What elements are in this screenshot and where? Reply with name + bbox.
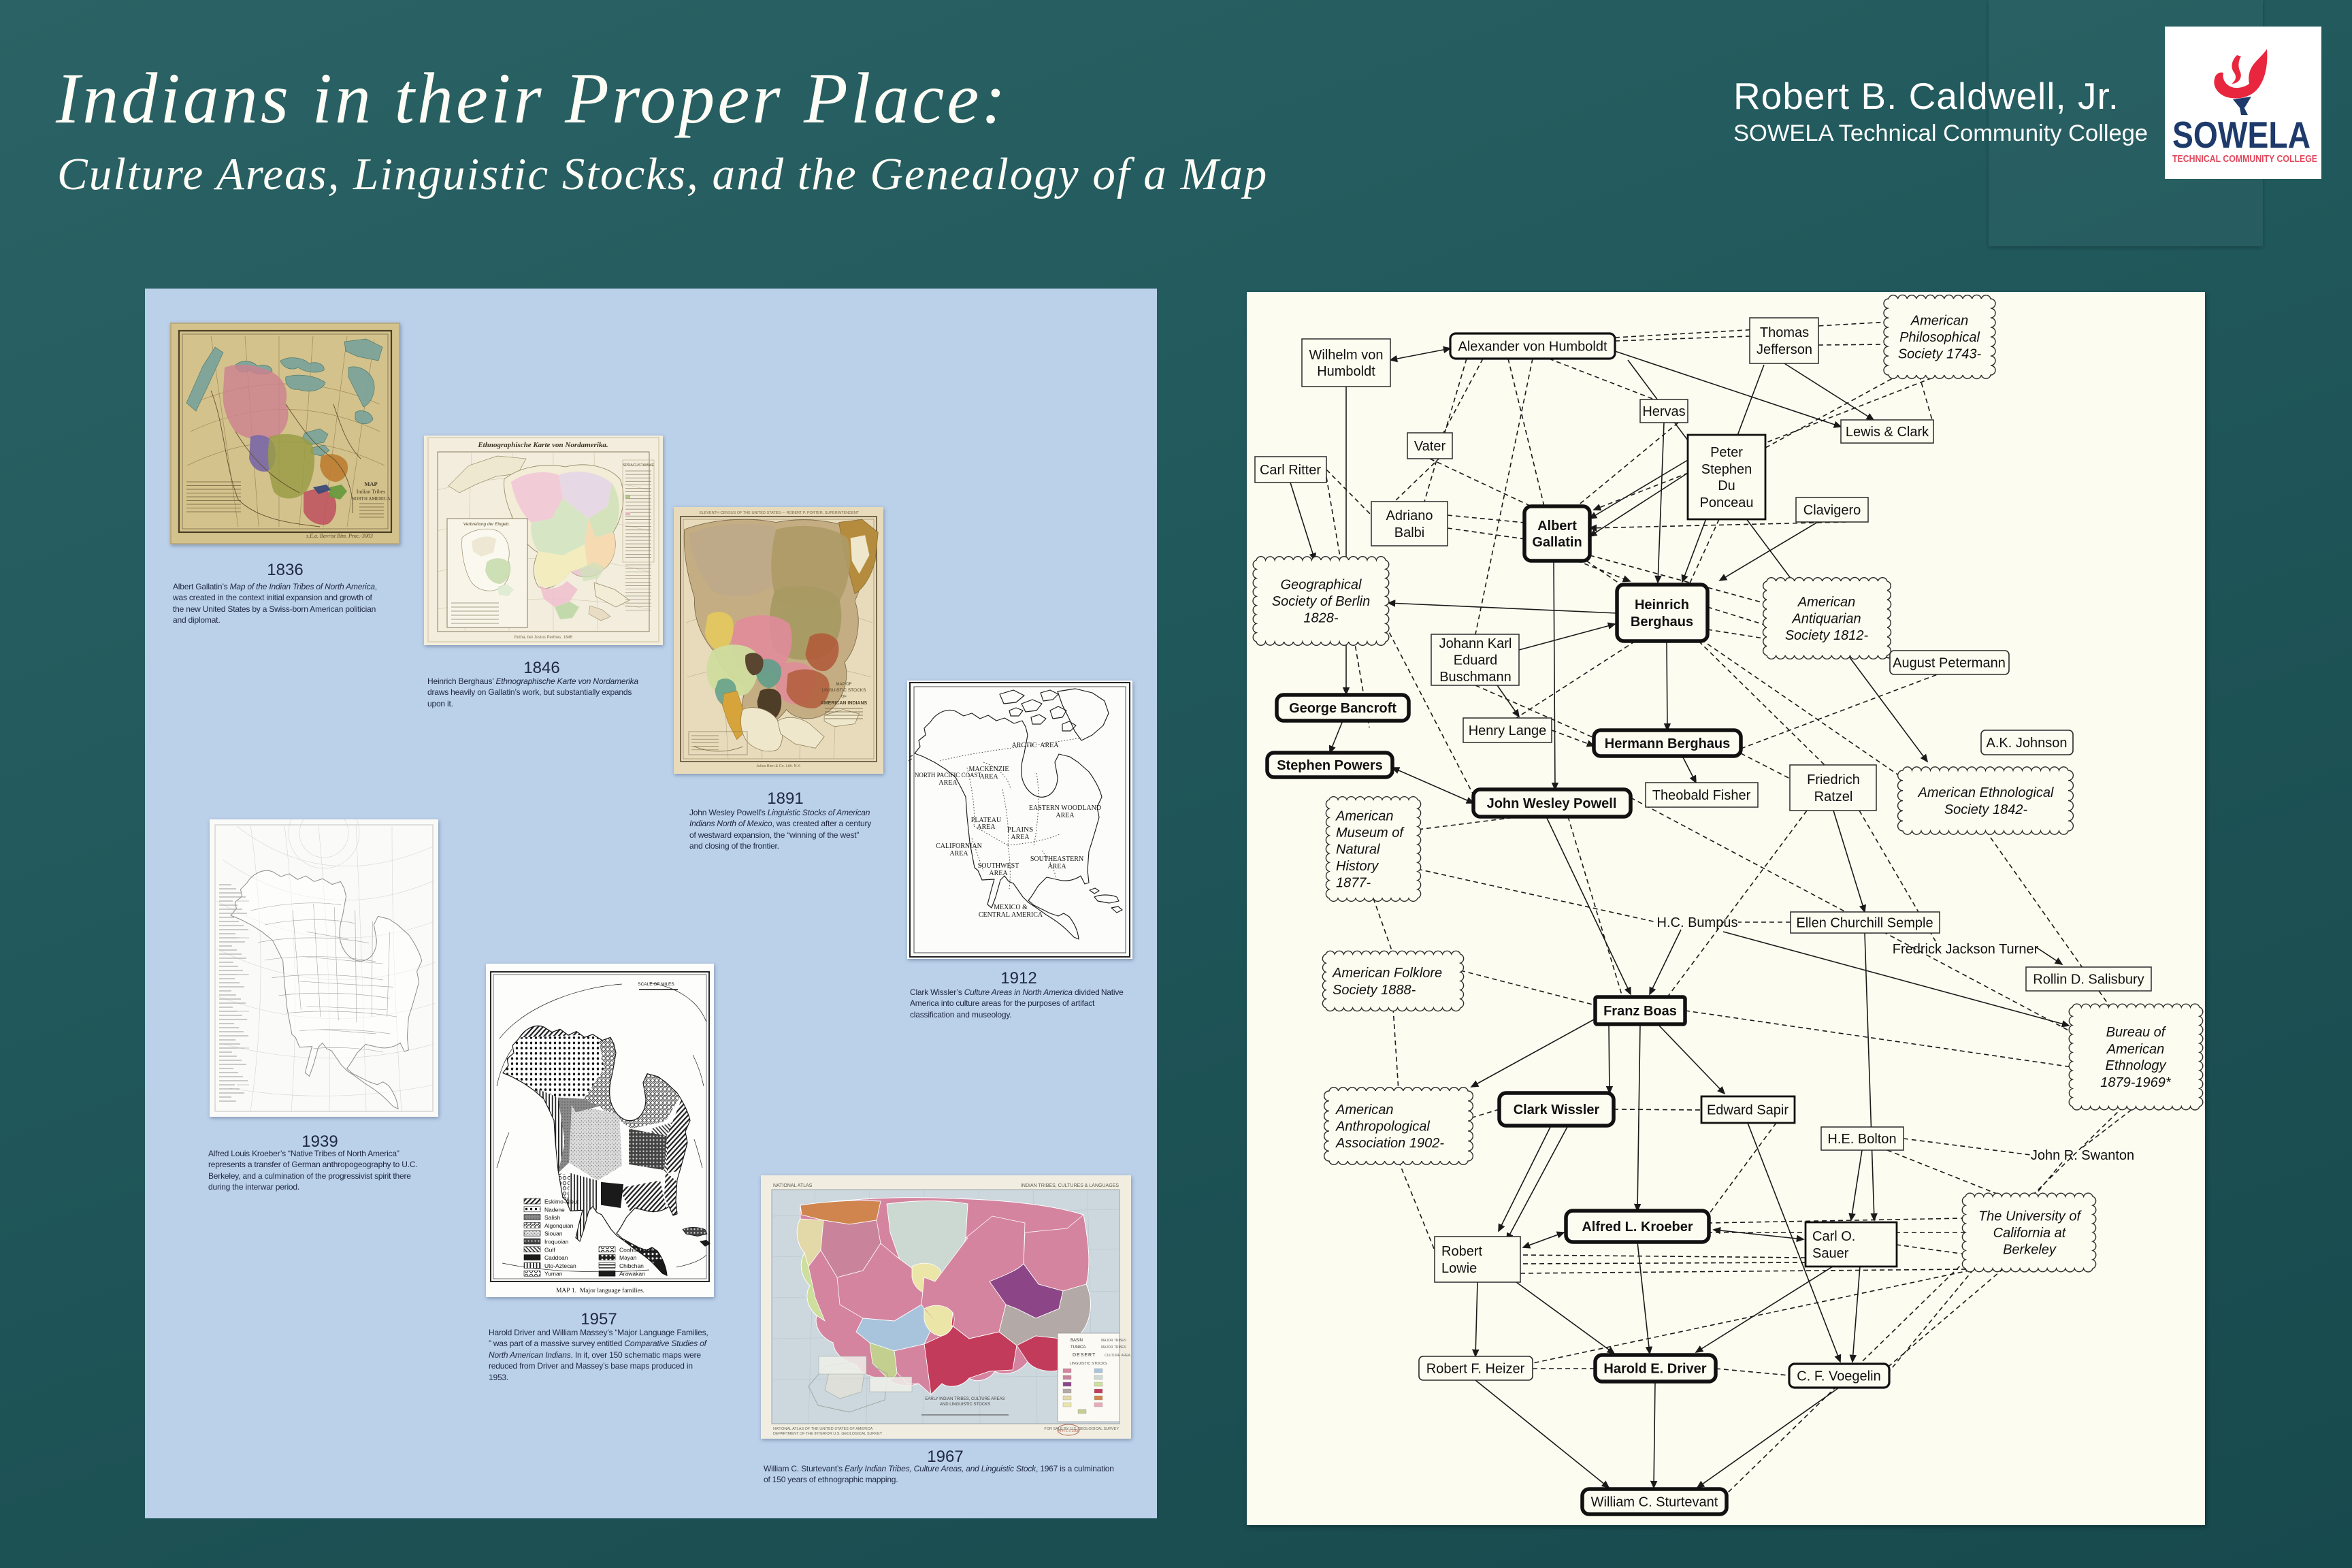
svg-text:Siouan: Siouan xyxy=(544,1230,563,1237)
svg-text:INDIAN TRIBES, CULTURES & LANG: INDIAN TRIBES, CULTURES & LANGUAGES xyxy=(1021,1183,1119,1188)
svg-text:Salish: Salish xyxy=(544,1214,560,1221)
svg-text:AREA: AREA xyxy=(977,823,996,831)
svg-text:NATIONAL ATLAS: NATIONAL ATLAS xyxy=(773,1183,813,1188)
svg-text:Geographical: Geographical xyxy=(1281,578,1362,593)
svg-text:Ponceau: Ponceau xyxy=(1700,495,1754,510)
svg-text:PLAINS: PLAINS xyxy=(1007,826,1034,834)
svg-text:American: American xyxy=(1910,314,1968,329)
svg-text:LINGUISTIC STOCKS: LINGUISTIC STOCKS xyxy=(822,688,867,693)
svg-text:MAP: MAP xyxy=(364,480,377,487)
svg-text:MEXICO &: MEXICO & xyxy=(994,904,1028,911)
svg-text:Buschmann: Buschmann xyxy=(1439,670,1512,685)
svg-text:DESERT: DESERT xyxy=(1073,1353,1096,1358)
svg-text:Nadene: Nadene xyxy=(544,1206,565,1213)
svg-text:Berkeley: Berkeley xyxy=(2003,1243,2057,1258)
svg-text:Wilhelm von: Wilhelm von xyxy=(1309,348,1384,363)
svg-text:Du: Du xyxy=(1718,478,1735,493)
svg-text:Natural: Natural xyxy=(1336,843,1380,857)
svg-text:American: American xyxy=(1335,809,1393,824)
svg-text:1877-: 1877- xyxy=(1336,876,1371,891)
svg-text:AREA: AREA xyxy=(1011,834,1030,841)
svg-text:NATIONAL ATLAS OF THE UNITED S: NATIONAL ATLAS OF THE UNITED STATES OF A… xyxy=(773,1427,873,1431)
svg-text:Ellen Churchill Semple: Ellen Churchill Semple xyxy=(1796,916,1933,931)
svg-text:American Folklore: American Folklore xyxy=(1332,966,1442,981)
svg-text:AREA: AREA xyxy=(949,850,968,857)
svg-text:Anthropological: Anthropological xyxy=(1335,1120,1430,1134)
svg-text:MАР 1. Major language familie: MАР 1. Major language families. xyxy=(556,1287,644,1294)
svg-text:American: American xyxy=(2106,1042,2164,1057)
svg-text:Society of Berlin: Society of Berlin xyxy=(1272,594,1371,609)
svg-text:Stephen: Stephen xyxy=(1701,462,1752,477)
svg-text:DEPARTMENT OF THE INTERIOR U.: DEPARTMENT OF THE INTERIOR U.S. GEOLOGIC… xyxy=(773,1432,883,1436)
svg-text:Ethnology: Ethnology xyxy=(2106,1058,2167,1073)
svg-text:AREA: AREA xyxy=(979,773,998,781)
svg-text:Society 1888-: Society 1888- xyxy=(1333,983,1416,998)
svg-text:H.E. Bolton: H.E. Bolton xyxy=(1827,1132,1896,1147)
svg-text:Carl Ritter: Carl Ritter xyxy=(1260,463,1321,478)
svg-text:Carl O.: Carl O. xyxy=(1812,1229,1855,1244)
svg-text:AREA: AREA xyxy=(989,870,1008,877)
svg-text:Adriano: Adriano xyxy=(1386,508,1433,523)
svg-text:AMERICAN INDIANS: AMERICAN INDIANS xyxy=(821,701,868,706)
svg-text:Alfred L. Kroeber: Alfred L. Kroeber xyxy=(1582,1220,1693,1235)
svg-text:American Ethnological: American Ethnological xyxy=(1918,785,2055,800)
svg-text:Gallatin: Gallatin xyxy=(1532,535,1582,550)
svg-text:Rollin D. Salisbury: Rollin D. Salisbury xyxy=(2033,973,2144,987)
svg-text:Association 1902-: Association 1902- xyxy=(1335,1136,1444,1151)
svg-text:American: American xyxy=(1335,1102,1393,1117)
svg-text:1828-: 1828- xyxy=(1303,611,1338,626)
svg-text:Indian Tribes: Indian Tribes xyxy=(357,489,385,495)
svg-text:Society 1743-: Society 1743- xyxy=(1898,347,1982,362)
svg-text:MAP OF: MAP OF xyxy=(836,683,852,687)
svg-text:Robert: Robert xyxy=(1441,1244,1482,1259)
svg-text:Henry Lange: Henry Lange xyxy=(1469,723,1547,738)
svg-text:AND LINGUISTIC STOCKS: AND LINGUISTIC STOCKS xyxy=(940,1403,990,1407)
svg-text:Robert F. Heizer: Robert F. Heizer xyxy=(1426,1362,1525,1377)
svg-text:SPRACHSTAMME: SPRACHSTAMME xyxy=(623,463,654,468)
svg-text:Balbi: Balbi xyxy=(1394,525,1424,540)
svg-text:C. F. Voegelin: C. F. Voegelin xyxy=(1797,1369,1880,1384)
svg-text:TUNICA: TUNICA xyxy=(1071,1345,1085,1350)
svg-text:1879-1969*: 1879-1969* xyxy=(2100,1075,2172,1090)
svg-text:Fredrick Jackson Turner: Fredrick Jackson Turner xyxy=(1893,942,2039,957)
svg-text:Friedrich: Friedrich xyxy=(1807,772,1860,787)
svg-text:Clavigero: Clavigero xyxy=(1803,503,1861,518)
svg-text:TECHNICAL COMMUNITY COLLEGE: TECHNICAL COMMUNITY COLLEGE xyxy=(2172,153,2317,165)
svg-text:Alexander von Humboldt: Alexander von Humboldt xyxy=(1458,340,1607,355)
svg-text:George Bancroft: George Bancroft xyxy=(1289,701,1396,716)
svg-text:The University of: The University of xyxy=(1978,1209,2082,1224)
svg-text:Johann Karl: Johann Karl xyxy=(1439,636,1512,651)
svg-text:Humboldt: Humboldt xyxy=(1317,364,1375,379)
svg-text:H.C. Bumpus: H.C. Bumpus xyxy=(1657,915,1738,930)
svg-text:Hervas: Hervas xyxy=(1642,404,1685,419)
svg-text:Arawakan: Arawakan xyxy=(619,1271,645,1277)
svg-text:Philosophical: Philosophical xyxy=(1899,330,1980,345)
svg-text:SCALE OF MILES: SCALE OF MILES xyxy=(638,982,674,987)
svg-text:FOR SALE BY U.S. GEOLOGICAL SU: FOR SALE BY U.S. GEOLOGICAL SURVEY xyxy=(1044,1427,1119,1431)
svg-text:Thomas: Thomas xyxy=(1760,325,1809,340)
svg-text:American: American xyxy=(1797,595,1855,610)
svg-text:Harold E. Driver: Harold E. Driver xyxy=(1603,1362,1706,1377)
svg-text:Caddoan: Caddoan xyxy=(544,1254,568,1261)
svg-text:California at: California at xyxy=(1993,1226,2067,1241)
svg-text:s.E.a. Bavrist Bim. Proc.-3003: s.E.a. Bavrist Bim. Proc.-3003 xyxy=(306,533,373,539)
svg-text:CENTRAL AMERICA: CENTRAL AMERICA xyxy=(979,911,1043,919)
svg-text:Museum of: Museum of xyxy=(1336,826,1405,840)
svg-text:SOUTHEASTERN: SOUTHEASTERN xyxy=(1030,855,1083,863)
svg-text:Edward Sapir: Edward Sapir xyxy=(1707,1103,1788,1118)
svg-text:MAJOR TRIBES: MAJOR TRIBES xyxy=(1101,1345,1127,1350)
svg-text:EASTERN WOODLAND: EASTERN WOODLAND xyxy=(1029,804,1101,812)
svg-text:Franz Boas: Franz Boas xyxy=(1603,1004,1677,1019)
svg-text:Theobald Fisher: Theobald Fisher xyxy=(1652,788,1751,803)
svg-text:Albert: Albert xyxy=(1537,519,1577,534)
svg-text:NORTH PACIFIC COAST: NORTH PACIFIC COAST xyxy=(915,772,982,779)
svg-text:Mayan: Mayan xyxy=(619,1254,637,1261)
svg-text:Berghaus: Berghaus xyxy=(1631,615,1693,630)
svg-text:August Petermann: August Petermann xyxy=(1893,656,2006,671)
svg-text:NORTH AMERICA: NORTH AMERICA xyxy=(351,496,390,502)
svg-text:John Wesley Powell: John Wesley Powell xyxy=(1487,796,1617,811)
svg-text:SOWELA: SOWELA xyxy=(2172,114,2310,156)
svg-text:Bureau of: Bureau of xyxy=(2106,1025,2167,1040)
svg-text:History: History xyxy=(1336,859,1379,874)
svg-text:Stephen Powers: Stephen Powers xyxy=(1277,758,1383,773)
svg-text:Clark Wissler: Clark Wissler xyxy=(1514,1102,1600,1117)
svg-text:LINGUISTIC STOCKS: LINGUISTIC STOCKS xyxy=(1070,1362,1107,1366)
svg-text:Julius Bien & Co. Lith. N.Y.: Julius Bien & Co. Lith. N.Y. xyxy=(756,764,801,768)
svg-text:Lewis & Clark: Lewis & Clark xyxy=(1846,425,1929,440)
svg-text:Hermann Berghaus: Hermann Berghaus xyxy=(1605,736,1731,751)
svg-text:Yuman: Yuman xyxy=(544,1271,563,1277)
svg-text:MAJOR TRIBES: MAJOR TRIBES xyxy=(1101,1339,1127,1343)
svg-text:CULTURE AREA: CULTURE AREA xyxy=(1105,1354,1131,1358)
svg-text:Coahuiltecan: Coahuiltecan xyxy=(619,1246,653,1253)
svg-text:Lowie: Lowie xyxy=(1441,1261,1477,1276)
svg-text:Antiquarian: Antiquarian xyxy=(1791,612,1861,627)
svg-text:CALIFORNIAN: CALIFORNIAN xyxy=(936,843,982,850)
svg-text:Chibchan: Chibchan xyxy=(619,1262,644,1269)
svg-text:Sauer: Sauer xyxy=(1812,1246,1849,1261)
svg-text:Verbreitung der Eingeb.: Verbreitung der Eingeb. xyxy=(463,522,510,527)
svg-text:AREA: AREA xyxy=(938,779,958,787)
svg-text:Peter: Peter xyxy=(1710,445,1743,460)
svg-text:Eduard: Eduard xyxy=(1454,653,1498,668)
svg-text:Vater: Vater xyxy=(1414,439,1446,454)
svg-text:A.K. Johnson: A.K. Johnson xyxy=(1987,736,2068,751)
svg-text:Eskimo-Aleut: Eskimo-Aleut xyxy=(544,1198,579,1205)
svg-text:Ratzel: Ratzel xyxy=(1814,789,1853,804)
svg-text:John R. Swanton: John R. Swanton xyxy=(2031,1148,2134,1163)
svg-text:Ethnographische Karte von Nord: Ethnographische Karte von Nordamerika. xyxy=(477,441,608,449)
svg-text:Heinrich: Heinrich xyxy=(1635,598,1689,612)
svg-text:Gulf: Gulf xyxy=(544,1246,555,1253)
svg-text:SOUTHWEST: SOUTHWEST xyxy=(978,862,1019,870)
svg-text:Society 1812-: Society 1812- xyxy=(1785,628,1869,643)
svg-text:Iroquoian: Iroquoian xyxy=(544,1239,569,1245)
svg-text:OF: OF xyxy=(841,695,847,699)
svg-text:AREA: AREA xyxy=(1047,863,1066,870)
svg-text:Uto-Aztecan: Uto-Aztecan xyxy=(544,1262,576,1269)
svg-text:AREA: AREA xyxy=(1056,812,1075,819)
svg-text:BASIN: BASIN xyxy=(1071,1339,1083,1343)
svg-text:Gotha, bei Justus Perthes. 184: Gotha, bei Justus Perthes. 1846 xyxy=(514,636,572,640)
svg-text:Algonquian: Algonquian xyxy=(544,1222,574,1229)
svg-text:Society 1842-: Society 1842- xyxy=(1944,802,2028,817)
svg-text:Jefferson: Jefferson xyxy=(1757,342,1812,357)
svg-text:William C. Sturtevant: William C. Sturtevant xyxy=(1591,1495,1718,1510)
svg-text:ELEVENTH CENSUS OF THE UNITED: ELEVENTH CENSUS OF THE UNITED STATES — R… xyxy=(700,511,860,515)
svg-text:ARCTIC AREA: ARCTIC AREA xyxy=(1012,742,1060,749)
svg-text:EARLY INDIAN TRIBES, CULTURE A: EARLY INDIAN TRIBES, CULTURE AREAS xyxy=(925,1397,1004,1401)
